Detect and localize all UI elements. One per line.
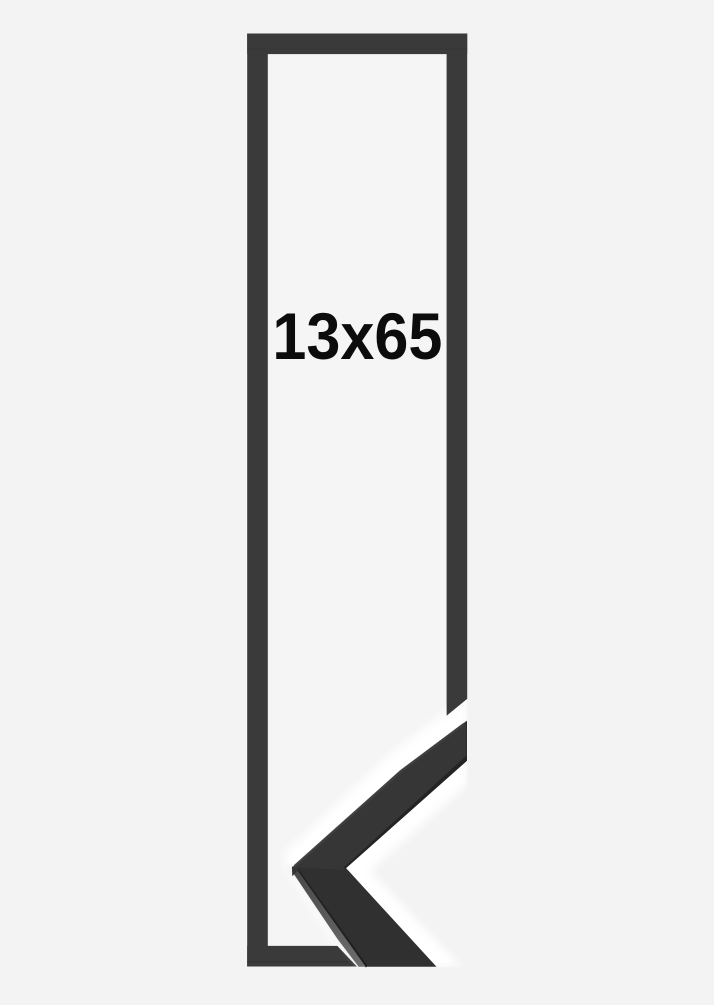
svg-text:13x65: 13x65: [272, 299, 442, 373]
